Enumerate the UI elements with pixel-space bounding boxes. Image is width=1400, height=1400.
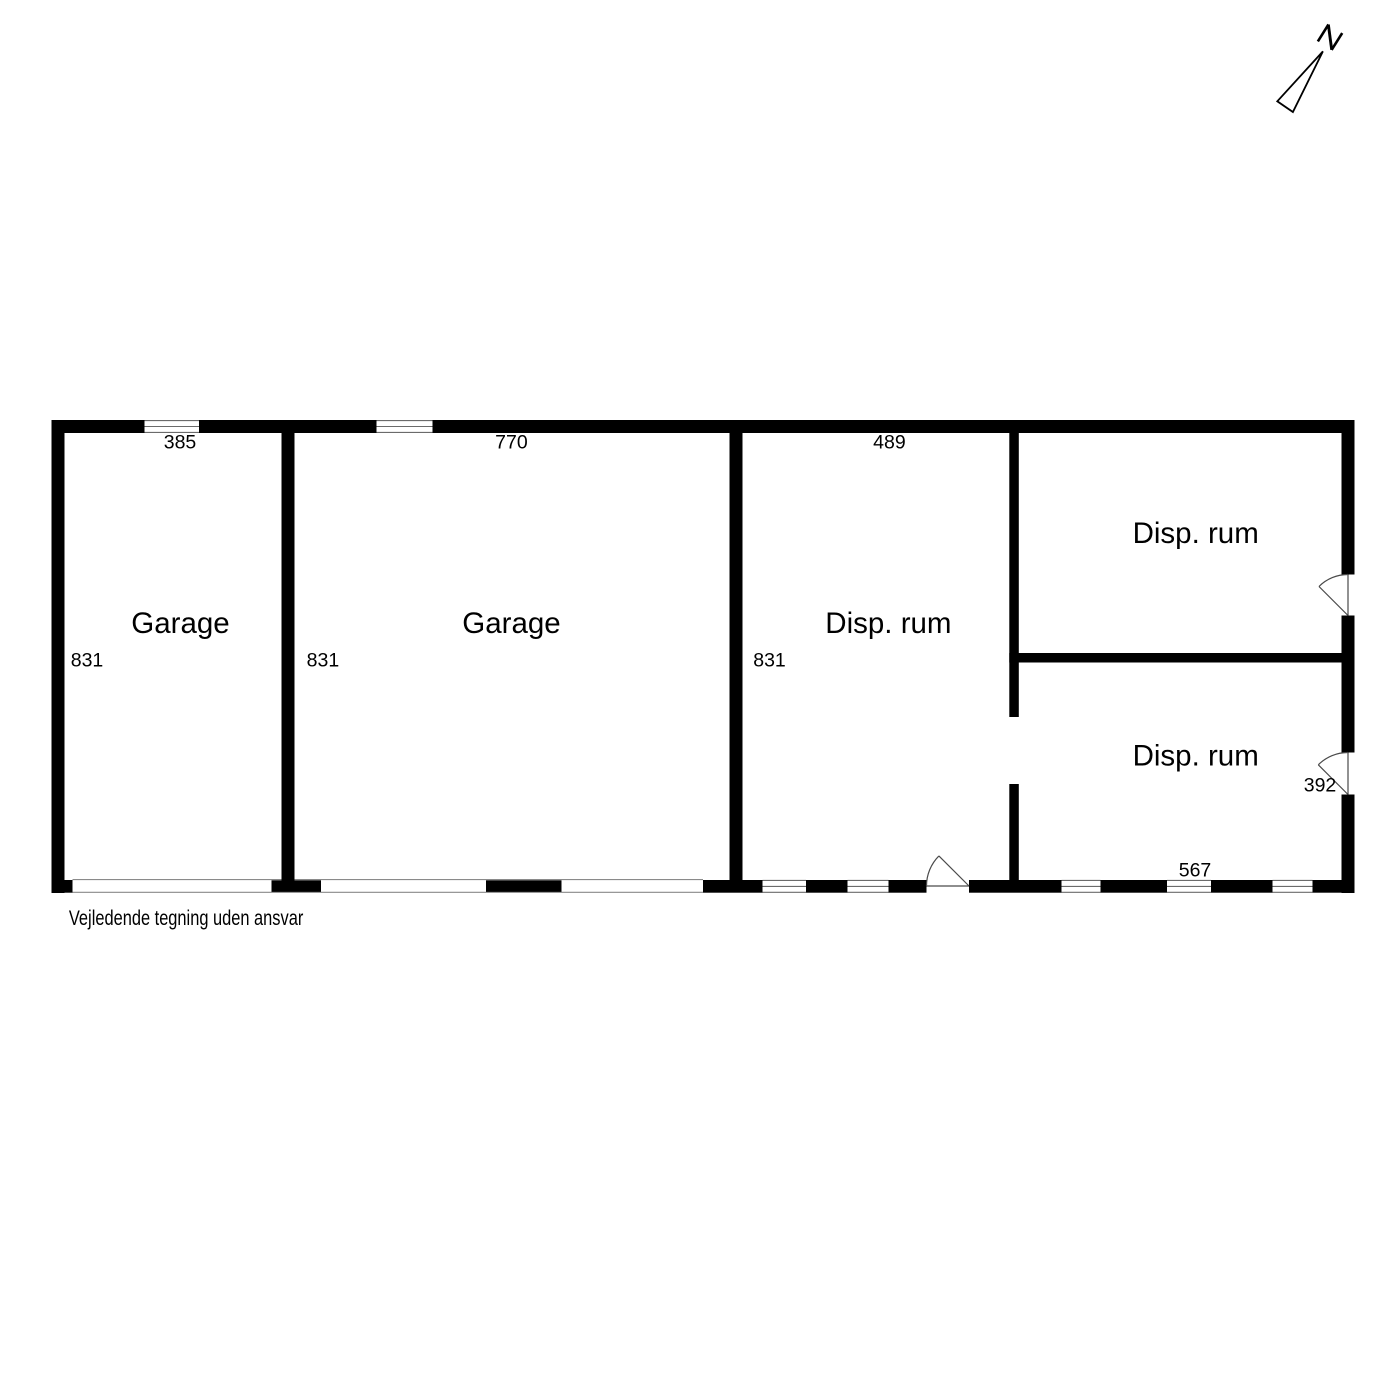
svg-text:Disp. rum: Disp. rum (1133, 740, 1259, 773)
svg-text:Vejledende tegning uden ansvar: Vejledende tegning uden ansvar (69, 907, 303, 930)
svg-text:831: 831 (71, 649, 104, 671)
svg-text:385: 385 (164, 432, 197, 454)
svg-text:Garage: Garage (131, 607, 229, 640)
svg-text:831: 831 (753, 649, 786, 671)
svg-text:392: 392 (1304, 775, 1337, 797)
svg-text:567: 567 (1179, 860, 1212, 882)
svg-text:489: 489 (873, 432, 906, 454)
svg-text:831: 831 (307, 649, 340, 671)
svg-text:770: 770 (495, 432, 528, 454)
svg-text:Garage: Garage (462, 607, 560, 640)
svg-text:Disp. rum: Disp. rum (825, 607, 951, 640)
svg-text:Disp. rum: Disp. rum (1133, 517, 1259, 550)
